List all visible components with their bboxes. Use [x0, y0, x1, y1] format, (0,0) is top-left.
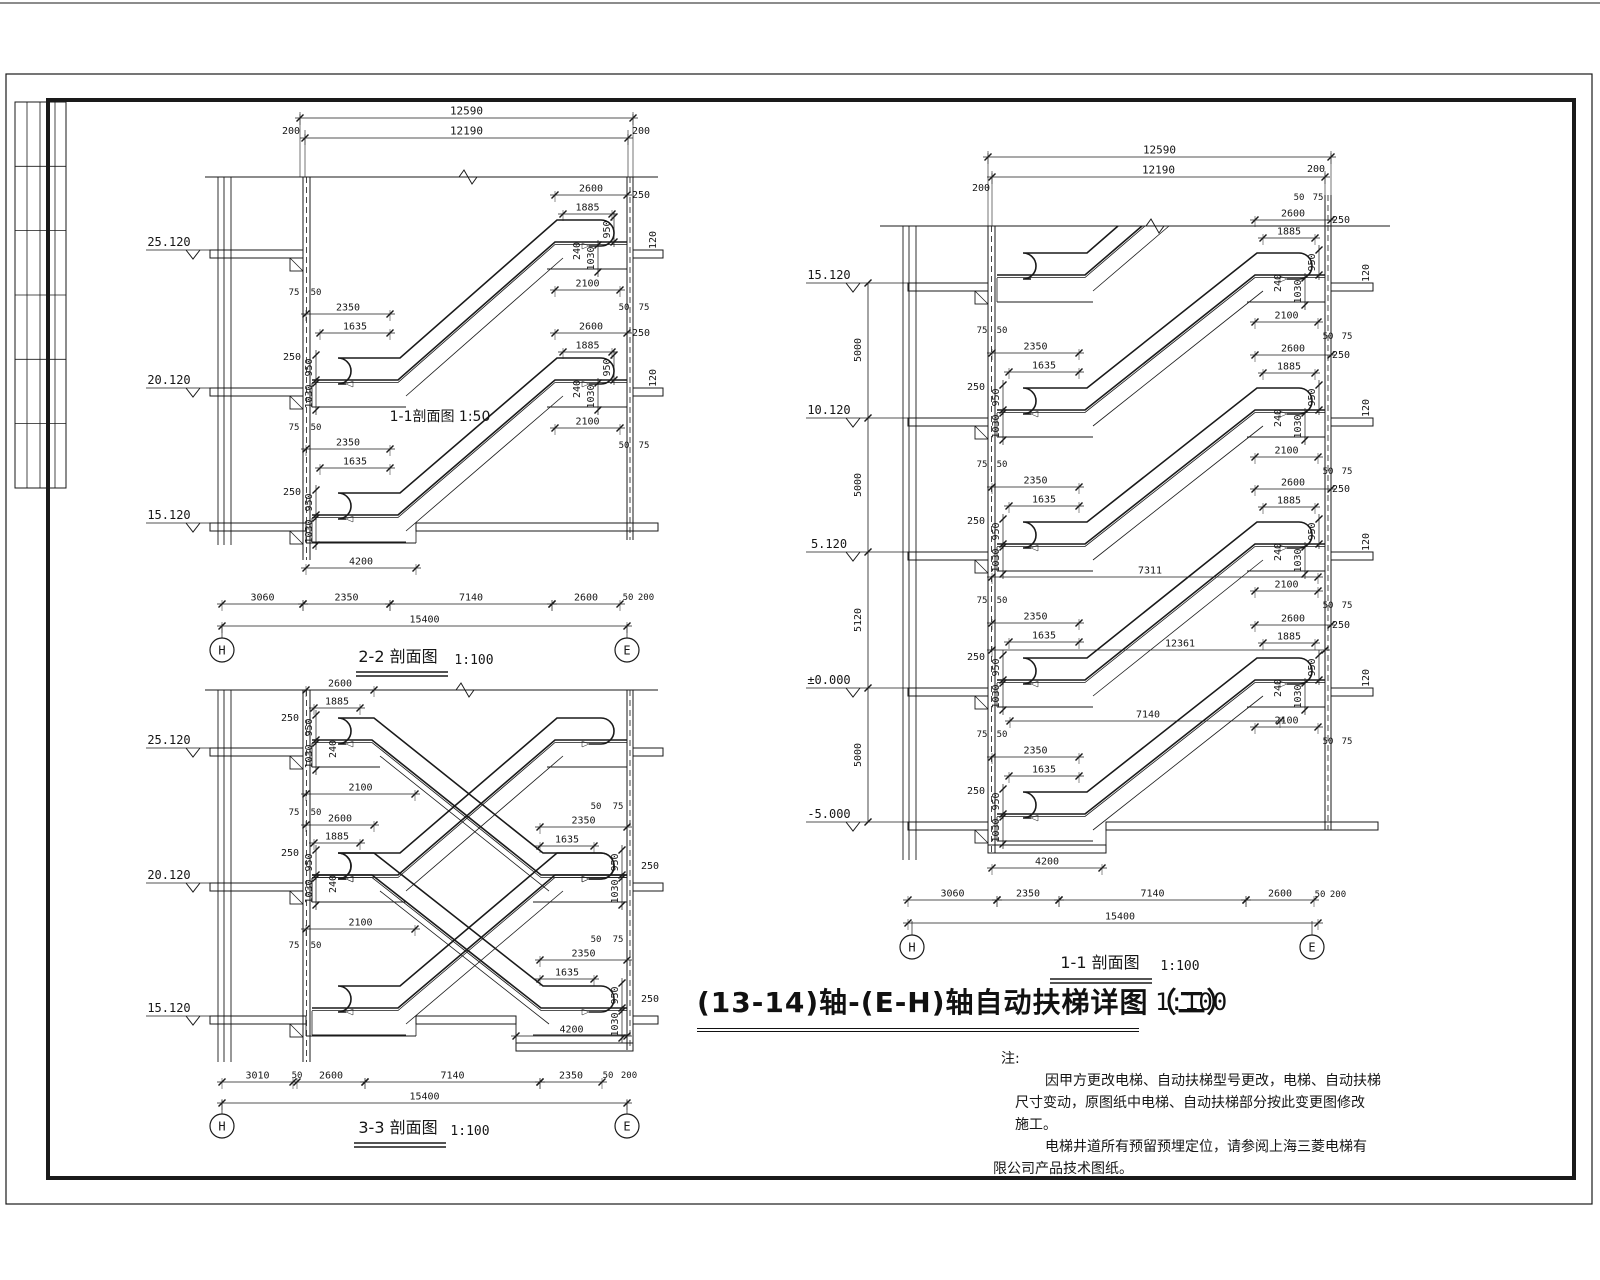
dim-label: 2100 — [1274, 311, 1298, 322]
dim-label: 50 — [1323, 601, 1334, 611]
dim-label: 2100 — [348, 918, 372, 929]
dim-label: 2600 — [328, 679, 352, 690]
dim-label: 1885 — [1277, 227, 1301, 238]
dim-label: 2600 — [1281, 614, 1305, 625]
dim-label: 950 — [1307, 522, 1318, 540]
dim-label: 75 — [1313, 193, 1324, 203]
floor-slab-hatch — [633, 250, 663, 258]
dim-label: 250 — [641, 994, 659, 1005]
dim-label: 1635 — [1032, 361, 1056, 372]
notes-header: 注: — [993, 1048, 1365, 1070]
floor-slab-hatch — [908, 822, 988, 830]
dim-label: 950 — [602, 358, 613, 376]
dim-label: 950 — [304, 718, 315, 736]
dim-label: 3010 — [245, 1071, 269, 1082]
grid-bubble-label: E — [1308, 941, 1315, 955]
arrow-icon — [1031, 681, 1038, 687]
dim-label: 75 — [1342, 601, 1353, 611]
dim-label: 1885 — [575, 203, 599, 214]
dim-label: 50 — [1294, 193, 1305, 203]
cad-line — [290, 531, 303, 544]
dim-label: 250 — [967, 382, 985, 393]
cad-line — [290, 891, 303, 904]
dim-label: 1030 — [304, 879, 315, 903]
cad-line — [975, 696, 988, 709]
dim-label: 50 — [603, 1071, 614, 1081]
cad-polyline — [186, 388, 200, 397]
arrow-icon — [582, 741, 589, 747]
dim-label: 2350 — [1023, 476, 1047, 487]
dim-label: 50 — [1323, 332, 1334, 342]
dim-label: 2600 — [1281, 478, 1305, 489]
dim-label: 240 — [1273, 679, 1284, 697]
elevation-label: 20.120 — [147, 868, 190, 882]
dim-label: 50 — [619, 441, 630, 451]
dim-label: 50 — [311, 941, 322, 951]
dim-label: 2100 — [1274, 446, 1298, 457]
dim-label: 200 — [621, 1071, 637, 1081]
dim-label: 2350 — [1023, 612, 1047, 623]
dim-label: 240 — [1273, 274, 1284, 292]
dim-label: 1885 — [1277, 632, 1301, 643]
dim-label: 50 — [623, 593, 634, 603]
dim-label: 950 — [991, 792, 1002, 810]
elevation-label: -5.000 — [807, 807, 850, 821]
dim-label: 1635 — [343, 457, 367, 468]
dim-label: 2100 — [1274, 580, 1298, 591]
dim-label: 2350 — [1023, 342, 1047, 353]
elevation-label: 15.120 — [147, 1001, 190, 1015]
arrow-icon — [582, 876, 589, 882]
floor-slab-hatch — [416, 1016, 516, 1024]
escalator-handrail — [1023, 226, 1118, 279]
dim-label: 120 — [1361, 669, 1372, 687]
dim-label: 1635 — [1032, 765, 1056, 776]
dim-label: 7140 — [1140, 889, 1164, 900]
dim-label: 50 — [997, 596, 1008, 606]
dim-label: 75 — [289, 941, 300, 951]
sheet-title-scale: 1:100 — [1155, 988, 1227, 1016]
dim-label: 1885 — [575, 341, 599, 352]
section-scale: 1:100 — [450, 1124, 489, 1139]
cad-line — [975, 426, 988, 439]
dim-label: 200 — [1307, 164, 1325, 175]
dim-label: 12190 — [1142, 164, 1175, 177]
inner-section-label: 1-1剖面图 1:50 — [390, 409, 491, 425]
floor-slab-hatch — [908, 552, 988, 560]
cad-polyline — [312, 878, 627, 1011]
notes-block: 注: 因甲方更改电梯、自动扶梯型号更改，电梯、自动扶梯 尺寸变动，原图纸中电梯、… — [993, 1048, 1365, 1180]
dim-label: 950 — [991, 522, 1002, 540]
dim-label: 1030 — [304, 744, 315, 768]
floor-slab-hatch — [633, 883, 663, 891]
section-title: 2-2 剖面图 — [358, 647, 437, 666]
dim-label: 240 — [572, 380, 583, 398]
dim-label: 75 — [977, 596, 988, 606]
dim-label: 240 — [1273, 409, 1284, 427]
dim-label: 250 — [1332, 350, 1350, 361]
dim-label: 75 — [977, 326, 988, 336]
dim-label: 1030 — [991, 684, 1002, 708]
dim-label: 3060 — [940, 889, 964, 900]
dim-label: 950 — [304, 493, 315, 511]
arrow-icon — [346, 1009, 353, 1015]
dim-label: 950 — [991, 658, 1002, 676]
cad-line — [290, 1024, 303, 1037]
dim-label: 12361 — [1165, 639, 1195, 650]
dim-label: 1030 — [586, 246, 597, 270]
dim-label: 50 — [1323, 737, 1334, 747]
dim-label: 12590 — [450, 105, 483, 118]
grid-bubble-label: H — [218, 644, 225, 658]
elevation-label: 5.120 — [811, 537, 847, 551]
dim-label: 250 — [283, 487, 301, 498]
arrow-icon — [1031, 545, 1038, 551]
cad-line — [975, 830, 988, 843]
dim-label: 1030 — [991, 548, 1002, 572]
dim-label: 12190 — [450, 125, 483, 138]
dim-label: 75 — [639, 303, 650, 313]
dim-label: 75 — [1342, 332, 1353, 342]
cad-line — [406, 756, 563, 891]
dim-label: 1030 — [610, 1012, 621, 1036]
elevation-label: 10.120 — [807, 403, 850, 417]
dim-label: 250 — [1332, 620, 1350, 631]
dim-label: 1030 — [1293, 684, 1304, 708]
floor-slab-hatch — [908, 283, 988, 291]
floor-slab-hatch — [1331, 283, 1373, 291]
elevation-label: 25.120 — [147, 733, 190, 747]
dim-label: 950 — [304, 358, 315, 376]
dim-label: 250 — [967, 786, 985, 797]
cad-polyline — [846, 552, 860, 561]
dim-label: 75 — [289, 288, 300, 298]
cad-polyline — [997, 226, 1145, 278]
dim-label: 5000 — [853, 338, 864, 362]
section-title: 1-1 剖面图 — [1060, 953, 1139, 972]
cad-polyline — [846, 283, 860, 292]
dim-label: 120 — [1361, 399, 1372, 417]
cad-polyline — [186, 883, 200, 892]
dim-label: 2350 — [334, 593, 358, 604]
arrow-icon — [346, 516, 353, 522]
dim-label: 250 — [1332, 484, 1350, 495]
dim-label: 1030 — [304, 519, 315, 543]
cad-line — [1093, 696, 1263, 830]
elevation-label: 15.120 — [147, 508, 190, 522]
dim-label: 50 — [311, 423, 322, 433]
dim-label: 75 — [977, 730, 988, 740]
sheet-title: (13-14)轴-(E-H)轴自动扶梯详图（二） — [697, 981, 1139, 1032]
dim-label: 5120 — [853, 608, 864, 632]
cad-line — [406, 258, 563, 396]
arrow-icon — [346, 876, 353, 882]
dim-label: 1885 — [1277, 496, 1301, 507]
dim-label: 950 — [304, 853, 315, 871]
outer-border — [6, 74, 1592, 1204]
note-line: 施工。 — [993, 1114, 1365, 1136]
cad-polyline — [186, 748, 200, 757]
dim-label: 950 — [602, 220, 613, 238]
dim-label: 240 — [572, 242, 583, 260]
dim-label: 15400 — [1105, 912, 1135, 923]
escalator-handrail — [338, 853, 614, 1012]
dim-label: 950 — [1307, 253, 1318, 271]
dim-label: 200 — [1330, 890, 1346, 900]
dim-label: 2350 — [559, 1071, 583, 1082]
dim-label: 2600 — [1281, 209, 1305, 220]
dim-label: 15400 — [409, 615, 439, 626]
dim-label: 1635 — [343, 322, 367, 333]
grid-bubble-label: E — [623, 1120, 630, 1134]
cad-line — [290, 396, 303, 409]
floor-slab-hatch — [633, 388, 663, 396]
cad-polyline — [312, 878, 627, 1011]
cad-line — [1093, 426, 1263, 560]
dim-label: 2600 — [574, 593, 598, 604]
dim-label: 250 — [281, 713, 299, 724]
cad-polyline — [846, 822, 860, 831]
cad-line — [975, 291, 988, 304]
section-title: 3-3 剖面图 — [358, 1118, 437, 1137]
dim-label: 1030 — [1293, 414, 1304, 438]
escalator-handrail — [1023, 388, 1312, 548]
dim-label: 2100 — [575, 279, 599, 290]
dim-label: 50 — [591, 802, 602, 812]
cad-polyline — [312, 245, 627, 383]
cad-polyline — [312, 740, 627, 875]
dim-label: 200 — [972, 183, 990, 194]
dim-label: 250 — [641, 861, 659, 872]
dim-label: 240 — [328, 875, 339, 893]
dim-label: 1635 — [555, 835, 579, 846]
dim-label: 50 — [1315, 890, 1326, 900]
dim-label: 250 — [967, 652, 985, 663]
dim-label: 200 — [632, 126, 650, 137]
dim-label: 75 — [289, 423, 300, 433]
dim-label: 950 — [1307, 388, 1318, 406]
dim-label: 2350 — [571, 949, 595, 960]
grid-bubble-label: H — [218, 1120, 225, 1134]
dim-label: 7140 — [1136, 710, 1160, 721]
dim-label: 2600 — [579, 184, 603, 195]
dim-label: 1030 — [586, 384, 597, 408]
dim-label: 7140 — [440, 1071, 464, 1082]
floor-slab-hatch — [633, 1016, 658, 1024]
dim-label: 1030 — [1293, 279, 1304, 303]
dim-label: 250 — [967, 516, 985, 527]
dim-label: 120 — [1361, 264, 1372, 282]
floor-slab-hatch — [908, 418, 988, 426]
dim-label: 200 — [638, 593, 654, 603]
floor-slab-hatch — [1331, 688, 1373, 696]
arrow-icon — [582, 1009, 589, 1015]
floor-slab-hatch — [908, 688, 988, 696]
floor-slab-hatch — [988, 845, 1106, 853]
dim-label: 75 — [1342, 467, 1353, 477]
dim-label: 75 — [613, 802, 624, 812]
drawing-sheet: 125901219020020025.12020.12015.120260018… — [0, 0, 1600, 1280]
dim-label: 5000 — [853, 743, 864, 767]
dim-label: 1635 — [555, 968, 579, 979]
cad-polyline — [312, 875, 627, 1008]
dim-label: 2100 — [575, 417, 599, 428]
section-scale: 1:100 — [454, 653, 493, 668]
elevation-label: ±0.000 — [807, 673, 850, 687]
dim-label: 50 — [1323, 467, 1334, 477]
dim-label: 3060 — [250, 593, 274, 604]
cad-polyline — [846, 418, 860, 427]
dim-label: 75 — [639, 441, 650, 451]
dim-label: 2350 — [1016, 889, 1040, 900]
grid-bubble-label: E — [623, 644, 630, 658]
dim-label: 2600 — [1281, 344, 1305, 355]
dim-label: 4200 — [559, 1025, 583, 1036]
arrow-icon — [346, 741, 353, 747]
dim-label: 1635 — [1032, 631, 1056, 642]
dim-label: 200 — [282, 126, 300, 137]
dim-label: 50 — [311, 288, 322, 298]
elevation-label: 20.120 — [147, 373, 190, 387]
dim-label: 2600 — [579, 322, 603, 333]
cad-polyline — [312, 743, 627, 878]
dim-label: 1885 — [325, 697, 349, 708]
dim-label: 2350 — [336, 303, 360, 314]
dim-label: 120 — [648, 231, 659, 249]
dim-label: 1885 — [1277, 362, 1301, 373]
dim-label: 50 — [997, 730, 1008, 740]
floor-slab-hatch — [633, 748, 663, 756]
arrow-icon — [582, 876, 589, 882]
dim-label: 50 — [311, 808, 322, 818]
dim-label: 250 — [283, 352, 301, 363]
dim-label: 50 — [619, 303, 630, 313]
arrow-icon — [1031, 815, 1038, 821]
dim-label: 2350 — [1023, 746, 1047, 757]
cad-line — [290, 258, 303, 271]
floor-slab-hatch — [416, 523, 658, 531]
dim-label: 2600 — [319, 1071, 343, 1082]
cad-line — [1093, 291, 1263, 426]
note-line: 限公司产品技术图纸。 — [993, 1158, 1365, 1180]
cad-polyline — [312, 743, 627, 878]
floor-slab-hatch — [516, 1043, 633, 1051]
escalator-handrail — [1023, 658, 1312, 818]
floor-slab-hatch — [1331, 552, 1373, 560]
dim-label: 5000 — [853, 473, 864, 497]
dim-label: 240 — [1273, 543, 1284, 561]
dim-label: 2600 — [328, 814, 352, 825]
dim-label: 7140 — [459, 593, 483, 604]
cad-polyline — [312, 875, 627, 1008]
section-scale: 1:100 — [1160, 959, 1199, 974]
arrow-icon — [1031, 411, 1038, 417]
dim-label: 950 — [1307, 658, 1318, 676]
cad-line — [975, 560, 988, 573]
note-line: 尺寸变动，原图纸中电梯、自动扶梯部分按此变更图修改 — [993, 1092, 1365, 1114]
dim-label: 950 — [610, 853, 621, 871]
cad-line — [1093, 560, 1263, 696]
cad-polyline — [186, 250, 200, 259]
dim-label: 1635 — [1032, 495, 1056, 506]
dim-label: 250 — [632, 328, 650, 339]
dim-label: 120 — [1361, 533, 1372, 551]
floor-slab-hatch — [1106, 822, 1378, 830]
floor-slab-hatch — [1331, 418, 1373, 426]
dim-label: 50 — [997, 460, 1008, 470]
arrow-icon — [346, 381, 353, 387]
cad-polyline — [186, 1016, 200, 1025]
grid-bubble-label: H — [908, 941, 915, 955]
cad-polyline — [312, 383, 627, 518]
dim-label: 2350 — [571, 816, 595, 827]
dim-label: 50 — [997, 326, 1008, 336]
dim-label: 75 — [1342, 737, 1353, 747]
dim-label: 7311 — [1138, 566, 1162, 577]
dim-label: 1030 — [304, 384, 315, 408]
dim-label: 250 — [281, 848, 299, 859]
cad-line — [290, 756, 303, 769]
dim-label: 950 — [991, 388, 1002, 406]
dim-label: 75 — [613, 935, 624, 945]
dim-label: 250 — [632, 190, 650, 201]
dim-label: 1030 — [991, 818, 1002, 842]
elevation-label: 25.120 — [147, 235, 190, 249]
dim-label: 950 — [610, 986, 621, 1004]
dim-label: 12590 — [1143, 144, 1176, 157]
dim-label: 1030 — [1293, 548, 1304, 572]
note-line: 因甲方更改电梯、自动扶梯型号更改，电梯、自动扶梯 — [993, 1070, 1365, 1092]
cad-polyline — [846, 688, 860, 697]
dim-label: 75 — [289, 808, 300, 818]
cad-polyline — [186, 523, 200, 532]
elevation-label: 15.120 — [807, 268, 850, 282]
arrow-icon — [346, 876, 353, 882]
dim-label: 250 — [1332, 215, 1350, 226]
dim-label: 2100 — [348, 783, 372, 794]
cad-polyline — [312, 740, 627, 875]
dim-label: 1030 — [610, 879, 621, 903]
dim-label: 1030 — [991, 414, 1002, 438]
dim-label: 240 — [328, 740, 339, 758]
dim-label: 15400 — [409, 1092, 439, 1103]
dim-label: 4200 — [1035, 857, 1059, 868]
dim-label: 50 — [591, 935, 602, 945]
note-line: 电梯井道所有预留预埋定位，请参阅上海三菱电梯有 — [993, 1136, 1365, 1158]
dim-label: 2600 — [1268, 889, 1292, 900]
dim-label: 1885 — [325, 832, 349, 843]
dim-label: 2350 — [336, 438, 360, 449]
dim-label: 4200 — [349, 557, 373, 568]
dim-label: 75 — [977, 460, 988, 470]
dim-label: 120 — [648, 369, 659, 387]
cad-line — [406, 891, 563, 1024]
